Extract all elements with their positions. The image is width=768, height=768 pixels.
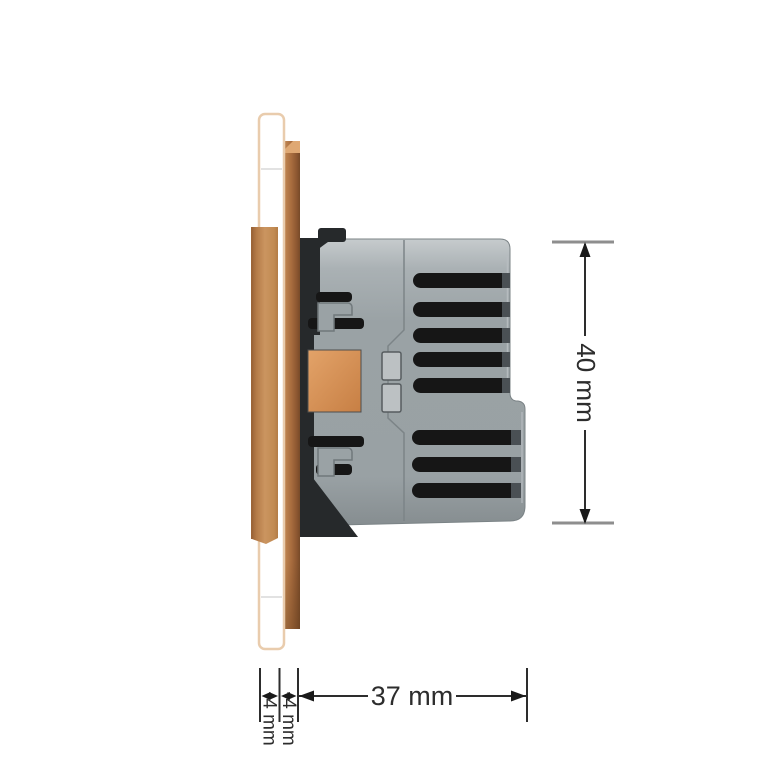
- vent-slot: [412, 457, 518, 472]
- terminal-block: [308, 350, 361, 412]
- vent-slot-cap: [511, 430, 521, 445]
- arrowhead-up-icon: [580, 242, 591, 257]
- dimension-label-frame-thickness: 4 mm: [278, 698, 299, 746]
- arrowhead-left-icon: [299, 691, 314, 702]
- technical-diagram: 40 mm 37 mm 4 mm 4 mm: [0, 0, 768, 768]
- dimension-depth: 37 mm: [260, 668, 527, 722]
- dimension-glass-thickness: 4 mm: [259, 692, 280, 746]
- detach-button: [382, 352, 401, 380]
- vent-slot-cap: [502, 328, 510, 343]
- vent-slot: [413, 352, 509, 367]
- vent-slot: [413, 328, 509, 343]
- dimension-label-glass-thickness: 4 mm: [259, 698, 280, 746]
- vent-slot-cap: [511, 483, 521, 498]
- dimension-height: 40 mm: [552, 242, 614, 524]
- module-body: [300, 228, 525, 537]
- retainer-slot: [308, 318, 364, 329]
- vent-slot: [413, 378, 509, 393]
- vent-slot-caps-lower: [511, 430, 521, 498]
- vent-slot-cap: [502, 352, 510, 367]
- vent-slot-cap: [511, 457, 521, 472]
- dimension-frame-thickness: 4 mm: [278, 692, 299, 746]
- vent-slot: [413, 273, 509, 288]
- vent-slot: [413, 302, 509, 317]
- inner-frame-strip: [252, 227, 278, 544]
- dimension-label-height: 40 mm: [571, 343, 601, 422]
- vent-slot-cap: [502, 273, 510, 288]
- diagram-canvas: 40 mm 37 mm 4 mm 4 mm: [0, 0, 768, 768]
- dimension-label-depth: 37 mm: [371, 681, 454, 711]
- vent-slot-cap: [502, 302, 510, 317]
- vent-slots-lower: [412, 430, 518, 498]
- vent-slot-cap: [502, 378, 510, 393]
- detach-button: [382, 384, 401, 412]
- retainer-slot: [316, 292, 352, 302]
- vent-slot: [412, 483, 518, 498]
- arrowhead-right-icon: [511, 691, 526, 702]
- retainer-slot: [308, 436, 364, 447]
- vent-slot: [412, 430, 518, 445]
